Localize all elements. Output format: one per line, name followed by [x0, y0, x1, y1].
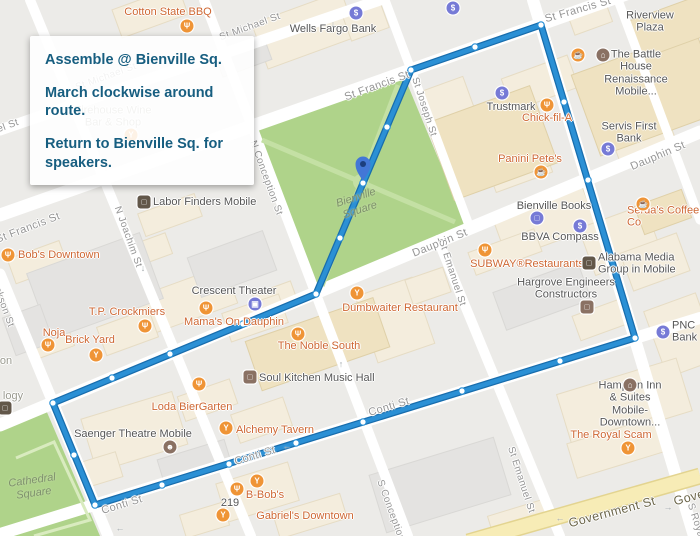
- poi-label[interactable]: Servis First Bank: [594, 121, 665, 146]
- street-label: St Emanuel St: [505, 445, 537, 514]
- street-label: Conti St: [367, 395, 411, 419]
- office-icon[interactable]: □: [244, 371, 257, 384]
- info-line-assemble: Assemble @ Bienville Sq.: [45, 51, 241, 69]
- street-label: Jackson St: [0, 275, 16, 328]
- poi-label[interactable]: Chick-fil-A: [522, 112, 572, 124]
- poi-label[interactable]: Gabriel's Downtown: [256, 510, 353, 522]
- one-way-arrow: ←: [556, 513, 565, 523]
- poi-label[interactable]: Dumbwaiter Restaurant: [342, 302, 458, 314]
- poi-label[interactable]: Hargrove Engineers Constructors: [517, 277, 615, 302]
- restaurant-icon[interactable]: Ψ: [139, 320, 152, 333]
- street-label: Conti St: [100, 493, 144, 517]
- cafe-icon[interactable]: ☕: [572, 49, 585, 62]
- poi-label[interactable]: Noja: [43, 327, 66, 339]
- poi-label[interactable]: 219: [221, 497, 239, 509]
- one-way-arrow: ←: [116, 523, 125, 533]
- info-line-return: Return to Bienville Sq. for speakers.: [45, 135, 241, 171]
- bank-icon[interactable]: $: [657, 326, 670, 339]
- bar-icon[interactable]: Y: [622, 442, 635, 455]
- street-label: St Emanuel St: [436, 238, 468, 307]
- one-way-arrow: →: [664, 502, 673, 512]
- poi-label[interactable]: Brick Yard: [65, 334, 115, 346]
- restaurant-icon[interactable]: Ψ: [2, 249, 15, 262]
- poi-label[interactable]: Labor Finders Mobile: [153, 196, 256, 208]
- poi-label[interactable]: B-Bob's: [246, 489, 284, 501]
- bar-icon[interactable]: Y: [217, 509, 230, 522]
- poi-label[interactable]: Panini Pete's: [498, 153, 562, 165]
- street-label: St Francis St: [343, 69, 411, 104]
- street-label: St Francis St: [0, 210, 62, 246]
- bank-icon[interactable]: $: [574, 220, 587, 233]
- poi-label[interactable]: T.P. Crockmiers: [89, 306, 165, 318]
- office-icon[interactable]: □: [583, 257, 596, 270]
- park-label: Bienville Square: [335, 186, 382, 223]
- bar-icon[interactable]: Y: [351, 287, 364, 300]
- restaurant-icon[interactable]: Ψ: [292, 328, 305, 341]
- shopping-icon[interactable]: □: [531, 212, 544, 225]
- park-label: Cathedral Square: [8, 471, 59, 503]
- masks-icon[interactable]: ☻: [164, 441, 177, 454]
- poi-label[interactable]: The Battle House Renaissance Mobile...: [604, 48, 668, 97]
- poi-label[interactable]: Mama's On Dauphin: [184, 316, 284, 328]
- bar-icon[interactable]: Y: [90, 349, 103, 362]
- restaurant-icon[interactable]: Ψ: [200, 302, 213, 315]
- poi-label[interactable]: The Royal Scam: [570, 429, 651, 441]
- restaurant-icon[interactable]: Ψ: [181, 20, 194, 33]
- poi-label[interactable]: Cotton State BBQ: [124, 6, 211, 18]
- one-way-arrow: ←: [283, 441, 292, 451]
- bank-icon[interactable]: $: [350, 7, 363, 20]
- poi-label[interactable]: Alabama Media Group in Mobile: [598, 252, 676, 277]
- poi-label[interactable]: on: [0, 355, 12, 367]
- bank-icon[interactable]: $: [447, 2, 460, 15]
- one-way-arrow: ↓: [141, 263, 146, 273]
- office-icon[interactable]: □: [581, 301, 594, 314]
- restaurant-icon[interactable]: Ψ: [479, 244, 492, 257]
- poi-label[interactable]: logy: [3, 390, 23, 402]
- poi-label[interactable]: BBVA Compass: [521, 231, 598, 243]
- street-label: Conti St: [233, 444, 277, 468]
- poi-label[interactable]: Bob's Downtown: [18, 249, 100, 261]
- hotel-icon[interactable]: ⌂: [624, 379, 637, 392]
- street-label: St Joseph St: [409, 76, 438, 138]
- poi-label[interactable]: Alchemy Tavern: [236, 424, 314, 436]
- bank-icon[interactable]: $: [496, 87, 509, 100]
- street-label: Government St: [567, 494, 657, 531]
- info-line-march: March clockwise around route.: [45, 84, 241, 120]
- street-label: N Joachim St: [112, 205, 144, 269]
- bar-icon[interactable]: Y: [220, 422, 233, 435]
- one-way-arrow: ↑: [339, 359, 344, 369]
- poi-label[interactable]: Loda BierGarten: [152, 401, 233, 413]
- street-label: el St: [0, 117, 20, 135]
- poi-label[interactable]: Soul Kitchen Music Hall: [259, 372, 375, 384]
- one-way-arrow: ↓: [331, 19, 336, 29]
- poi-label[interactable]: Bienville Books: [517, 200, 592, 212]
- cafe-icon[interactable]: ☕: [535, 166, 548, 179]
- bank-icon[interactable]: $: [602, 143, 615, 156]
- restaurant-icon[interactable]: Ψ: [541, 99, 554, 112]
- poi-label[interactable]: Crescent Theater: [192, 285, 277, 297]
- restaurant-icon[interactable]: Ψ: [42, 339, 55, 352]
- theater-icon[interactable]: ▣: [249, 298, 262, 311]
- poi-label[interactable]: SUBWAY®Restaurants: [470, 258, 584, 270]
- cafe-icon[interactable]: ☕: [637, 198, 650, 211]
- office-icon[interactable]: □: [138, 196, 151, 209]
- map-canvas[interactable]: St Michael StSt Michael Stel StSt Franci…: [0, 0, 700, 536]
- poi-label[interactable]: PNC Bank: [672, 320, 700, 345]
- office-icon[interactable]: □: [0, 402, 12, 415]
- poi-label[interactable]: Riverview Plaza: [625, 10, 675, 35]
- street-label: S Royal St: [685, 502, 700, 536]
- bar-icon[interactable]: Y: [251, 475, 264, 488]
- poi-label[interactable]: The Noble South: [278, 340, 361, 352]
- restaurant-icon[interactable]: Ψ: [193, 378, 206, 391]
- poi-label[interactable]: Saenger Theatre Mobile: [74, 428, 192, 440]
- hotel-icon[interactable]: ⌂: [597, 49, 610, 62]
- street-label: S Conception St: [374, 478, 411, 536]
- street-label: St Francis St: [544, 0, 613, 25]
- restaurant-icon[interactable]: Ψ: [231, 483, 244, 496]
- info-box: Assemble @ Bienville Sq. March clockwise…: [30, 36, 254, 185]
